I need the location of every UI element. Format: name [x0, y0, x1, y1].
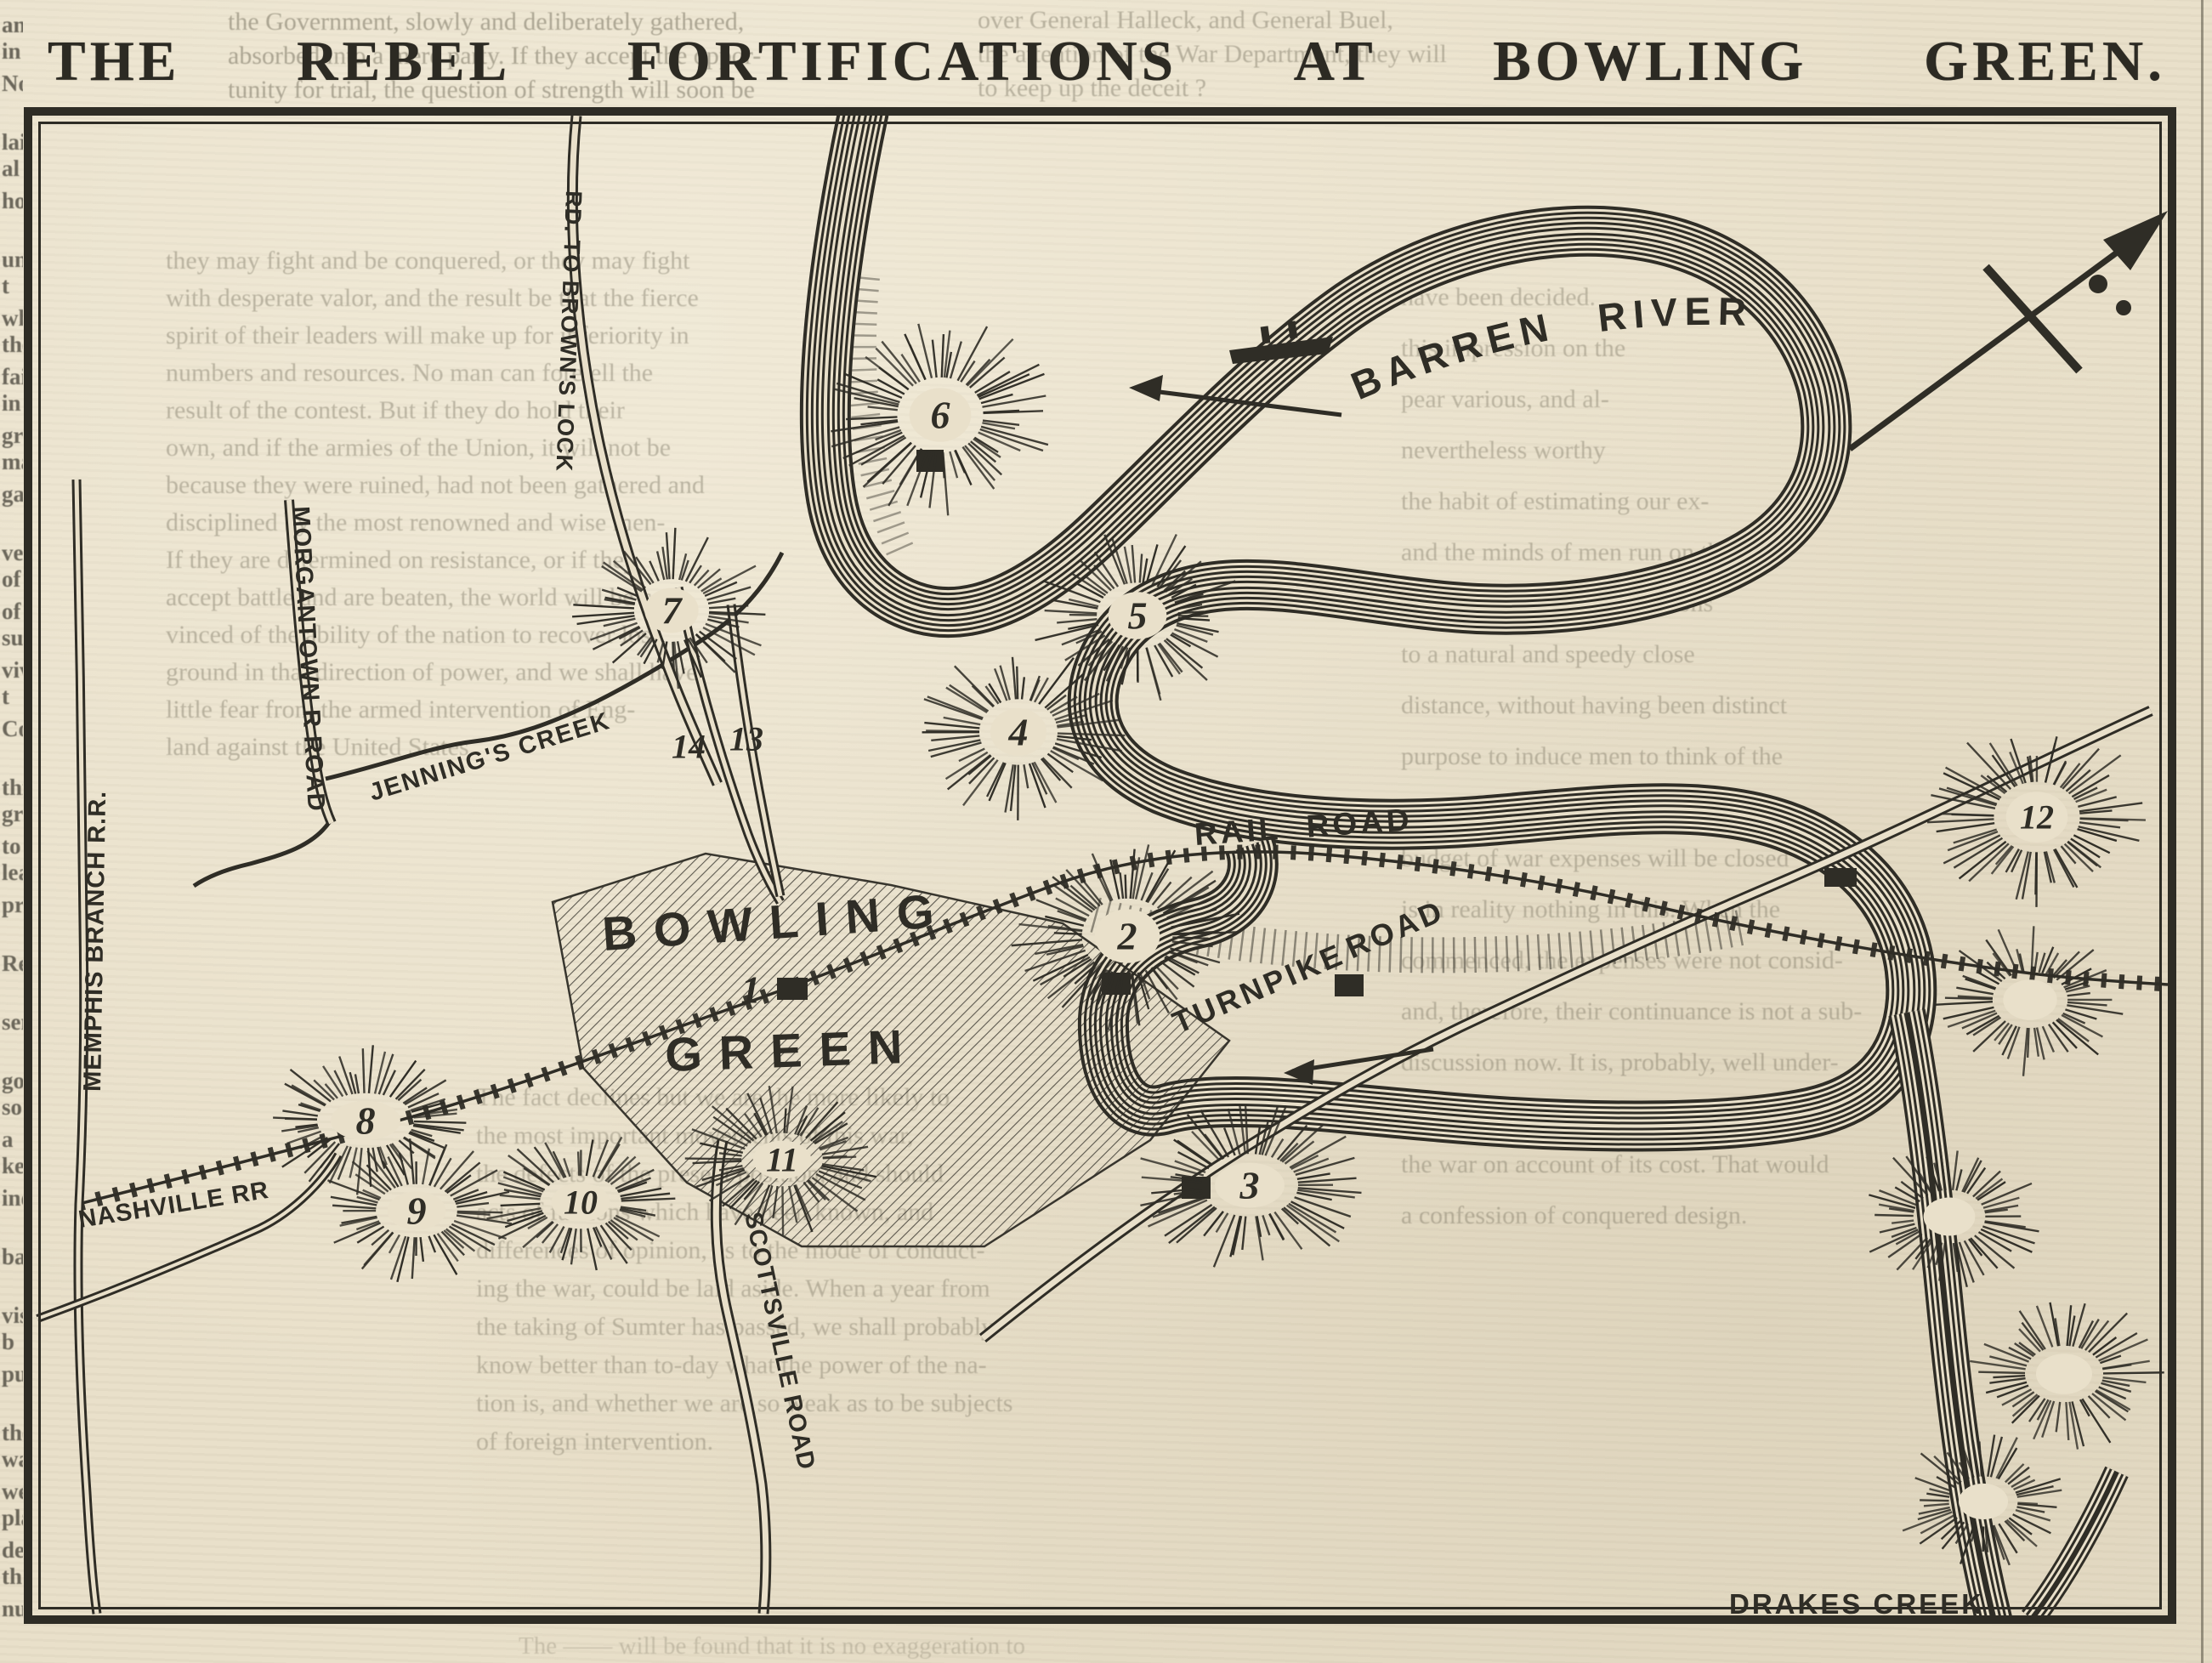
fort-number-1: 1: [741, 968, 761, 1012]
fort-number-6: 6: [931, 394, 950, 437]
margin-fragment: prisone: [2, 892, 23, 918]
label-turnpike: TURNPIKE: [1167, 936, 1350, 1040]
margin-fragment: battle: [2, 1244, 23, 1270]
margin-fragment: Rece: [2, 951, 23, 977]
hill-hatching: [1934, 926, 2124, 1076]
margin-fragment: lain al: [2, 129, 23, 182]
steamboat-icon: [1261, 326, 1271, 343]
margin-fragment: this gro: [2, 775, 23, 827]
margin-fragment: sensatio: [2, 1009, 23, 1036]
fort-number-10: 10: [564, 1183, 598, 1222]
title-word: AT: [1294, 29, 1377, 94]
fort-number-8: 8: [356, 1099, 376, 1143]
north-arrow-ornament: [2089, 275, 2107, 293]
margin-fragment: visit b: [2, 1303, 23, 1355]
road-to-browns-lock: [572, 116, 717, 784]
margin-fragment: publish: [2, 1361, 23, 1388]
north-arrow-head: [2103, 211, 2168, 270]
map-engraving: 1234567891011121314BARREN RIVERRAIL ROAD…: [32, 116, 2168, 1615]
fort-number-3: 3: [1239, 1164, 1260, 1207]
north-arrow: [1850, 236, 2139, 449]
building-square: [777, 978, 808, 1000]
margin-fragment: Not: [2, 71, 23, 97]
fort-number-14: 14: [672, 728, 706, 766]
label-drakes-creek: DRAKES CREEK: [1729, 1588, 1984, 1615]
margin-fragment: indiana: [2, 1185, 23, 1212]
fort-number-9: 9: [407, 1189, 427, 1233]
margin-fragment: number: [2, 1596, 23, 1622]
column-rule-right: [2201, 0, 2203, 1663]
north-arrow: [1986, 267, 2079, 371]
building-square: [1335, 974, 1364, 996]
margin-fragment: dead-th: [2, 1537, 23, 1590]
title-word: THE: [48, 29, 181, 94]
title-word: FORTIFICATIONS: [627, 29, 1177, 94]
margin-fragment: to lead: [2, 833, 23, 886]
map-frame: 1234567891011121314BARREN RIVERRAIL ROAD…: [24, 107, 2176, 1624]
margin-fragment: which the: [2, 305, 23, 358]
north-arrow-ornament: [2116, 300, 2131, 315]
margin-fragment: the war: [2, 1420, 23, 1473]
margin-fragment: Consolid: [2, 716, 23, 742]
fort-number-4: 4: [1008, 711, 1029, 754]
margin-fragment: of suffe: [2, 599, 23, 651]
margin-fragment: go- so: [2, 1068, 23, 1121]
road-to-browns-lock: [572, 116, 717, 784]
margin-fragment: vived, t: [2, 657, 23, 710]
margin-fragment: gallant: [2, 481, 23, 508]
newspaper-page: the Government, slowly and deliberately …: [0, 0, 2212, 1663]
fort-number-12: 12: [2020, 798, 2054, 837]
margin-fragment: were pla: [2, 1479, 23, 1531]
margin-fragment: cutta, th: [2, 1654, 23, 1663]
label-nashville-rr: NASHVILLE RR: [77, 1177, 271, 1234]
margin-fragment: fairs in: [2, 364, 23, 417]
page-title: THEREBELFORTIFICATIONSATBOWLINGGREEN.: [48, 29, 2166, 94]
label-browns-lock-road: RD. TO BROWN'S LOCK: [551, 190, 587, 473]
title-word: BOWLING: [1493, 29, 1807, 94]
label-memphis-branch: MEMPHIS BRANCH R.R.: [79, 790, 111, 1092]
creek-branch-line: [194, 821, 330, 886]
hill-hatching: [1970, 1303, 2164, 1450]
margin-fragment: a keep,: [2, 1127, 23, 1179]
margin-fragment: hors: [2, 188, 23, 214]
ghost-text-bottom-outside: The —— will be found that it is no exagg…: [519, 1631, 1025, 1661]
margin-fragment: vers of: [2, 540, 23, 593]
title-word: GREEN.: [1924, 29, 2166, 94]
label-morgantown-road: MORGANTOWN R ROAD: [286, 506, 330, 813]
label-green: GREEN: [664, 1019, 920, 1081]
left-margin-fragments: ance inNotlain alhorsunder twhich thefai…: [0, 0, 23, 1663]
fort-number-2: 2: [1117, 915, 1137, 958]
hill-hatching: [1903, 1435, 2062, 1565]
label-barren-river: BARREN RIVER: [1345, 289, 1754, 408]
margin-fragment: ance in: [2, 12, 23, 65]
building-square: [1824, 868, 1857, 887]
river-flow-arrow: [1129, 375, 1163, 401]
margin-fragment: under t: [2, 247, 23, 299]
fort-number-11: 11: [766, 1141, 798, 1179]
margin-fragment: great ma: [2, 423, 23, 475]
title-word: REBEL: [297, 29, 511, 94]
fort-number-5: 5: [1128, 594, 1148, 638]
fort-number-7: 7: [662, 589, 683, 633]
fort-number-13: 13: [729, 720, 763, 758]
